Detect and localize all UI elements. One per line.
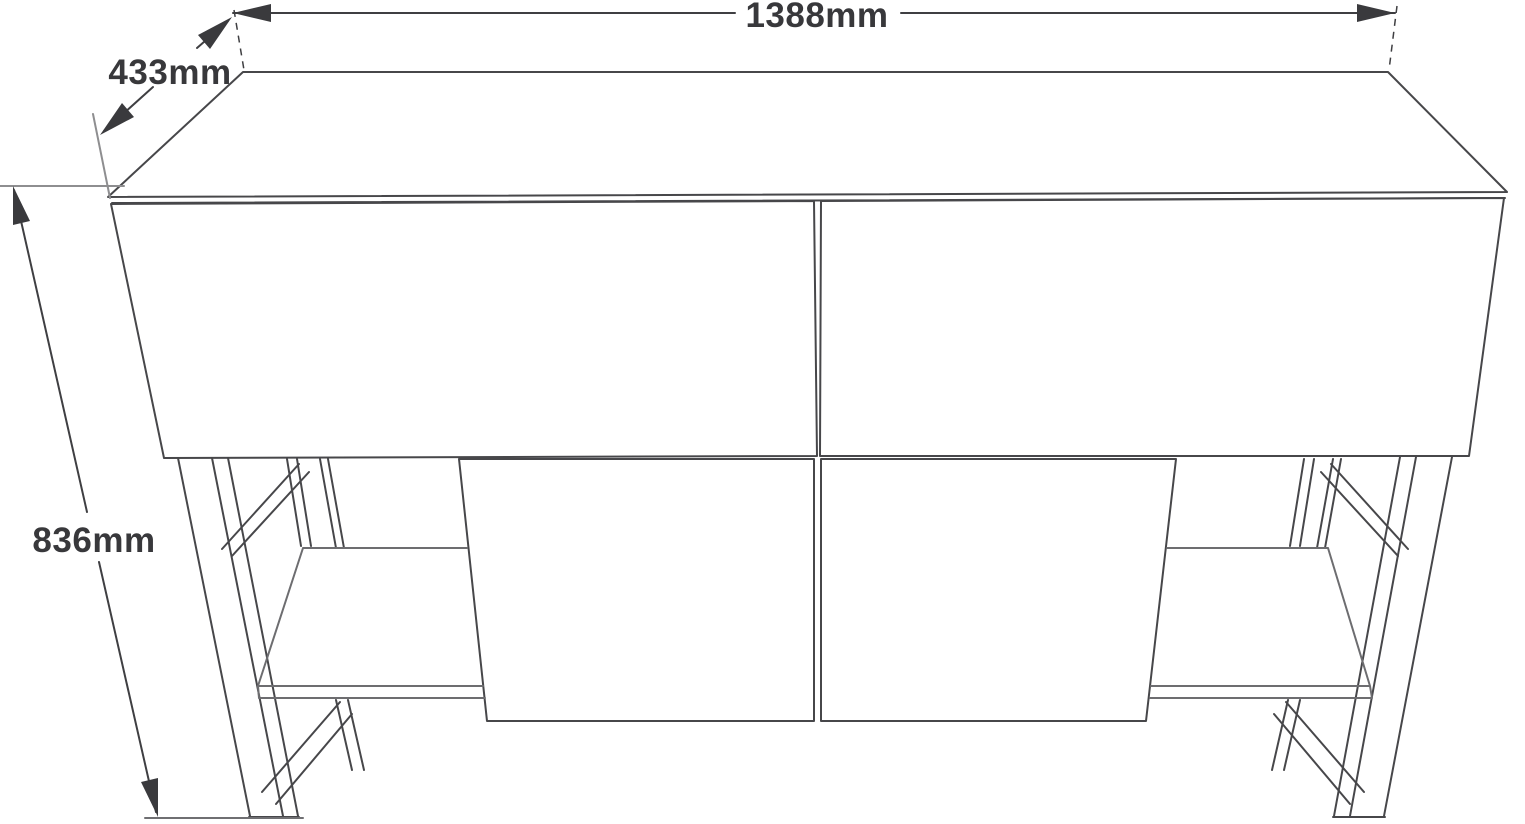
right-lower-panel	[821, 459, 1176, 721]
width-dimension-label: 1388mm	[745, 0, 888, 35]
right-drawer-front	[820, 198, 1504, 456]
depth-dimension-label: 433mm	[108, 53, 231, 92]
left-leg-rungs	[222, 464, 352, 804]
height-arrow-bottom	[141, 778, 158, 817]
depth-arrow-upper	[198, 17, 232, 49]
right-side-shelf	[1150, 548, 1372, 698]
gray-extension-lines	[0, 114, 124, 198]
width-arrow-left	[233, 4, 271, 22]
left-drawer-front	[111, 201, 817, 458]
left-back-leg	[287, 459, 364, 770]
left-lower-panel	[459, 459, 814, 721]
left-front-leg	[178, 458, 299, 817]
height-dimension-label: 836mm	[32, 521, 155, 560]
width-arrow-right	[1357, 4, 1395, 22]
width-extension-left	[234, 10, 244, 70]
furniture-drawing	[108, 72, 1507, 817]
technical-drawing-canvas: 1388mm 433mm 836mm	[0, 0, 1525, 824]
left-side-shelf	[258, 548, 485, 698]
furniture-dimension-diagram: 1388mm 433mm 836mm	[0, 0, 1525, 824]
height-arrow-top	[13, 186, 30, 225]
width-extension-right	[1389, 6, 1397, 70]
right-front-leg	[1333, 457, 1452, 817]
tabletop-surface	[108, 72, 1507, 197]
